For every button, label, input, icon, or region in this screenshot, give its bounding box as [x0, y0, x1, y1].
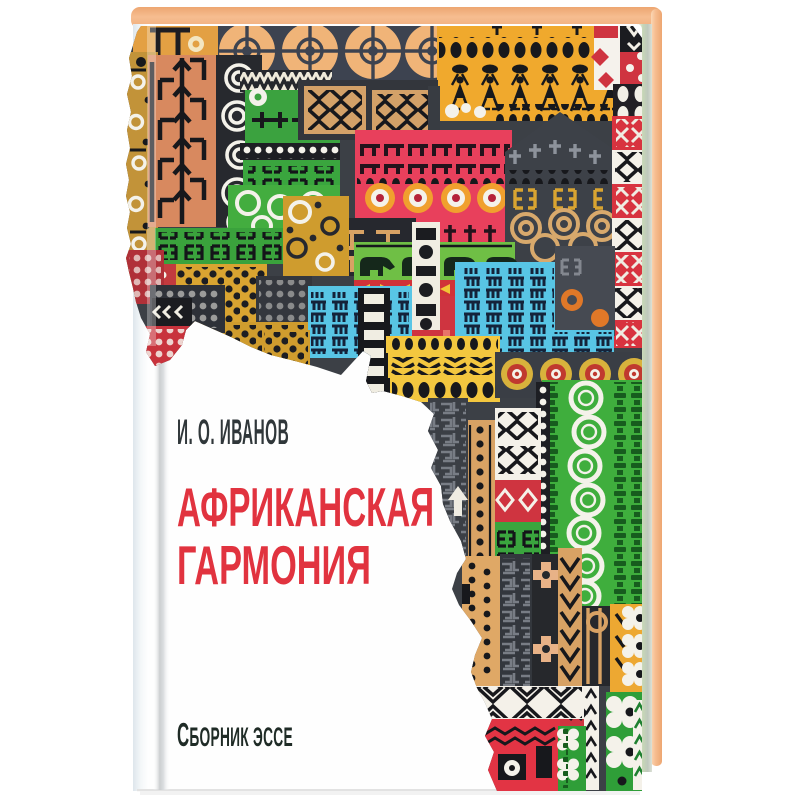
- svg-text:СБОРНИК ЭССЕ: СБОРНИК ЭССЕ: [177, 716, 293, 754]
- svg-text:АФРИКАНСКАЯ: АФРИКАНСКАЯ: [177, 476, 434, 538]
- svg-text:ГАРМОНИЯ: ГАРМОНИЯ: [177, 535, 371, 596]
- svg-text:И. О. ИВАНОВ: И. О. ИВАНОВ: [177, 413, 289, 452]
